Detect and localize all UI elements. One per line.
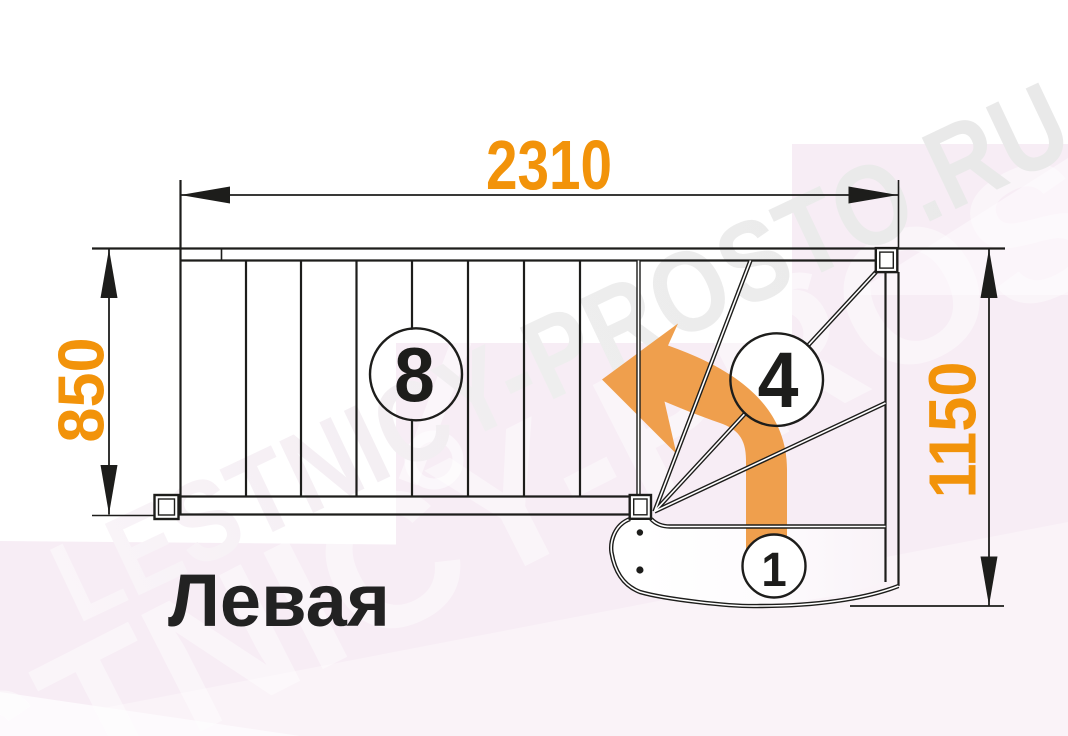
svg-text:Левая: Левая	[168, 559, 390, 642]
svg-text:850: 850	[45, 337, 118, 442]
svg-text:1150: 1150	[915, 361, 990, 498]
svg-text:1: 1	[761, 543, 786, 596]
svg-text:4: 4	[758, 337, 799, 425]
svg-text:8: 8	[394, 332, 435, 418]
svg-text:2310: 2310	[486, 126, 612, 204]
